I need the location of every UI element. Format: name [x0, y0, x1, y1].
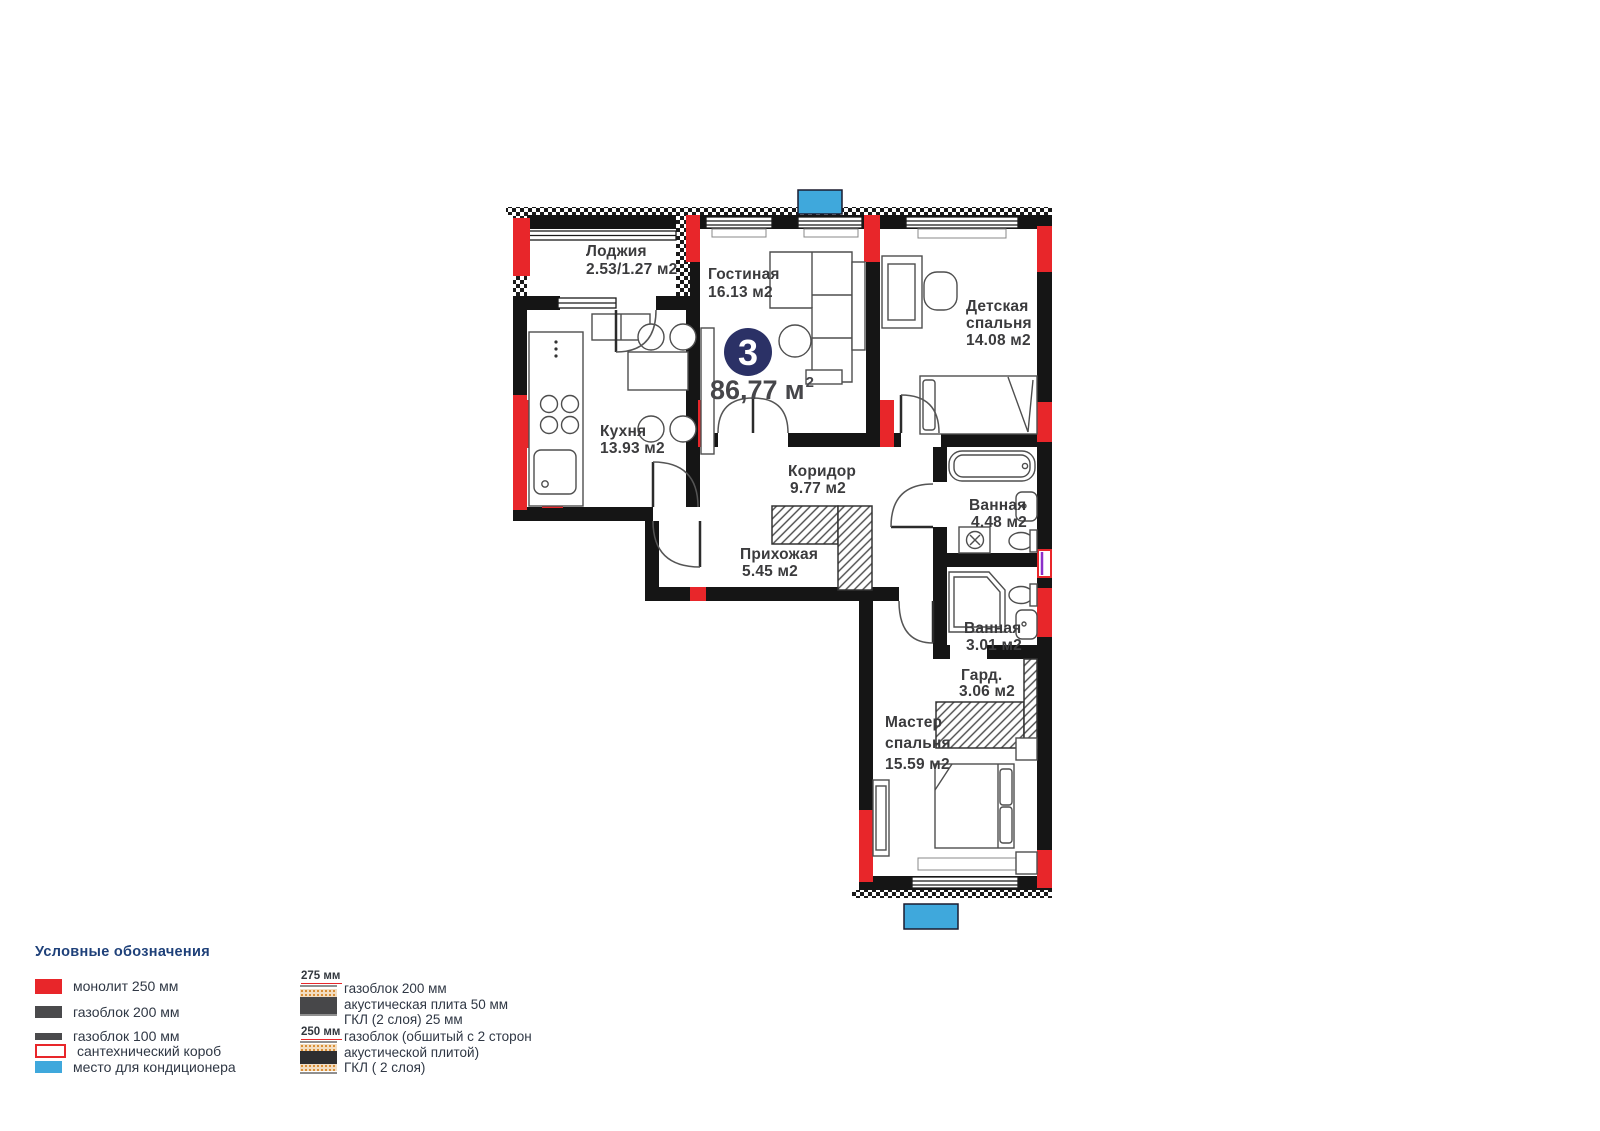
svg-text:спальня: спальня — [966, 315, 1032, 332]
wall-type-275-description: газоблок 200 мм акустическая плита 50 мм… — [344, 981, 508, 1028]
master-bed — [935, 764, 1014, 848]
wall-type-250-swatch — [300, 1041, 337, 1074]
svg-text:3.01 м2: 3.01 м2 — [966, 637, 1022, 654]
legend-title: Условные обозначения — [35, 944, 210, 960]
room-label-kids: Детская — [966, 298, 1028, 315]
legend-item-gasblock-200: газоблок 200 мм — [35, 1004, 180, 1020]
wall-type-275-dim: 275 мм — [301, 970, 342, 984]
legend-item-plumbing-box: сантехнический короб — [35, 1043, 221, 1059]
svg-text:16.13 м2: 16.13 м2 — [708, 284, 773, 301]
bathtub — [949, 451, 1035, 481]
badge-number: 3 — [738, 332, 758, 373]
toilet-2 — [1009, 584, 1037, 606]
gasblock-200-swatch — [35, 1006, 62, 1018]
ac-swatch — [35, 1061, 62, 1073]
svg-text:14.08 м2: 14.08 м2 — [966, 332, 1031, 349]
kitchen-sink — [534, 450, 576, 494]
monolith-swatch — [35, 979, 62, 994]
room-label-kitchen: Кухня — [600, 423, 646, 440]
room-label-living: Гостиная — [708, 266, 780, 283]
room-label-wardrobe: Гард. — [961, 667, 1002, 684]
ac-unit-top — [798, 190, 842, 214]
floor-plan-page: Лоджия 2.53/1.27 м2 Гостиная 16.13 м2 Де… — [0, 0, 1600, 1131]
plumbing-box-bathroom — [1038, 550, 1051, 577]
desk — [882, 256, 922, 328]
svg-text:3.06 м2: 3.06 м2 — [959, 683, 1015, 700]
coffee-table — [779, 325, 811, 357]
legend-item-gasblock-100: газоблок 100 мм — [35, 1028, 180, 1044]
sofa — [770, 252, 852, 384]
room-label-bathroom-2: Ванная — [964, 620, 1021, 637]
wall-type-250-dim: 250 мм — [301, 1026, 342, 1040]
svg-text:15.59 м2: 15.59 м2 — [885, 756, 950, 773]
room-label-corridor: Коридор — [788, 463, 856, 480]
wall-type-275-swatch — [300, 985, 337, 1016]
legend-item-ac: место для кондиционера — [35, 1059, 236, 1075]
svg-text:4.48 м2: 4.48 м2 — [971, 514, 1027, 531]
plumbing-box-swatch — [35, 1044, 66, 1058]
ac-unit-bottom — [904, 904, 958, 929]
floor-plan-drawing: Лоджия 2.53/1.27 м2 Гостиная 16.13 м2 Де… — [0, 0, 1600, 1131]
svg-text:13.93 м2: 13.93 м2 — [600, 440, 665, 457]
desk-chair — [924, 272, 957, 310]
svg-text:9.77 м2: 9.77 м2 — [790, 480, 846, 497]
nightstand — [1016, 738, 1037, 874]
room-label-master: Мастер — [885, 714, 942, 731]
toilet — [1009, 530, 1037, 552]
svg-text:2.53/1.27 м2: 2.53/1.27 м2 — [586, 261, 677, 278]
svg-text:5.45 м2: 5.45 м2 — [742, 563, 798, 580]
legend-item-monolith: монолит 250 мм — [35, 978, 178, 994]
wall-type-250-description: газоблок (обшитый с 2 сторон акустическо… — [344, 1029, 532, 1076]
room-label-loggia: Лоджия — [586, 243, 647, 260]
fridge-icon — [554, 340, 557, 357]
room-label-bathroom-1: Ванная — [969, 497, 1026, 514]
dresser — [873, 780, 889, 856]
svg-text:спальня: спальня — [885, 735, 951, 752]
gasblock-100-swatch — [35, 1033, 62, 1040]
kids-bed — [920, 376, 1037, 434]
total-area-label: 86,77м2 — [710, 374, 814, 405]
room-label-hallway: Прихожая — [740, 546, 818, 563]
